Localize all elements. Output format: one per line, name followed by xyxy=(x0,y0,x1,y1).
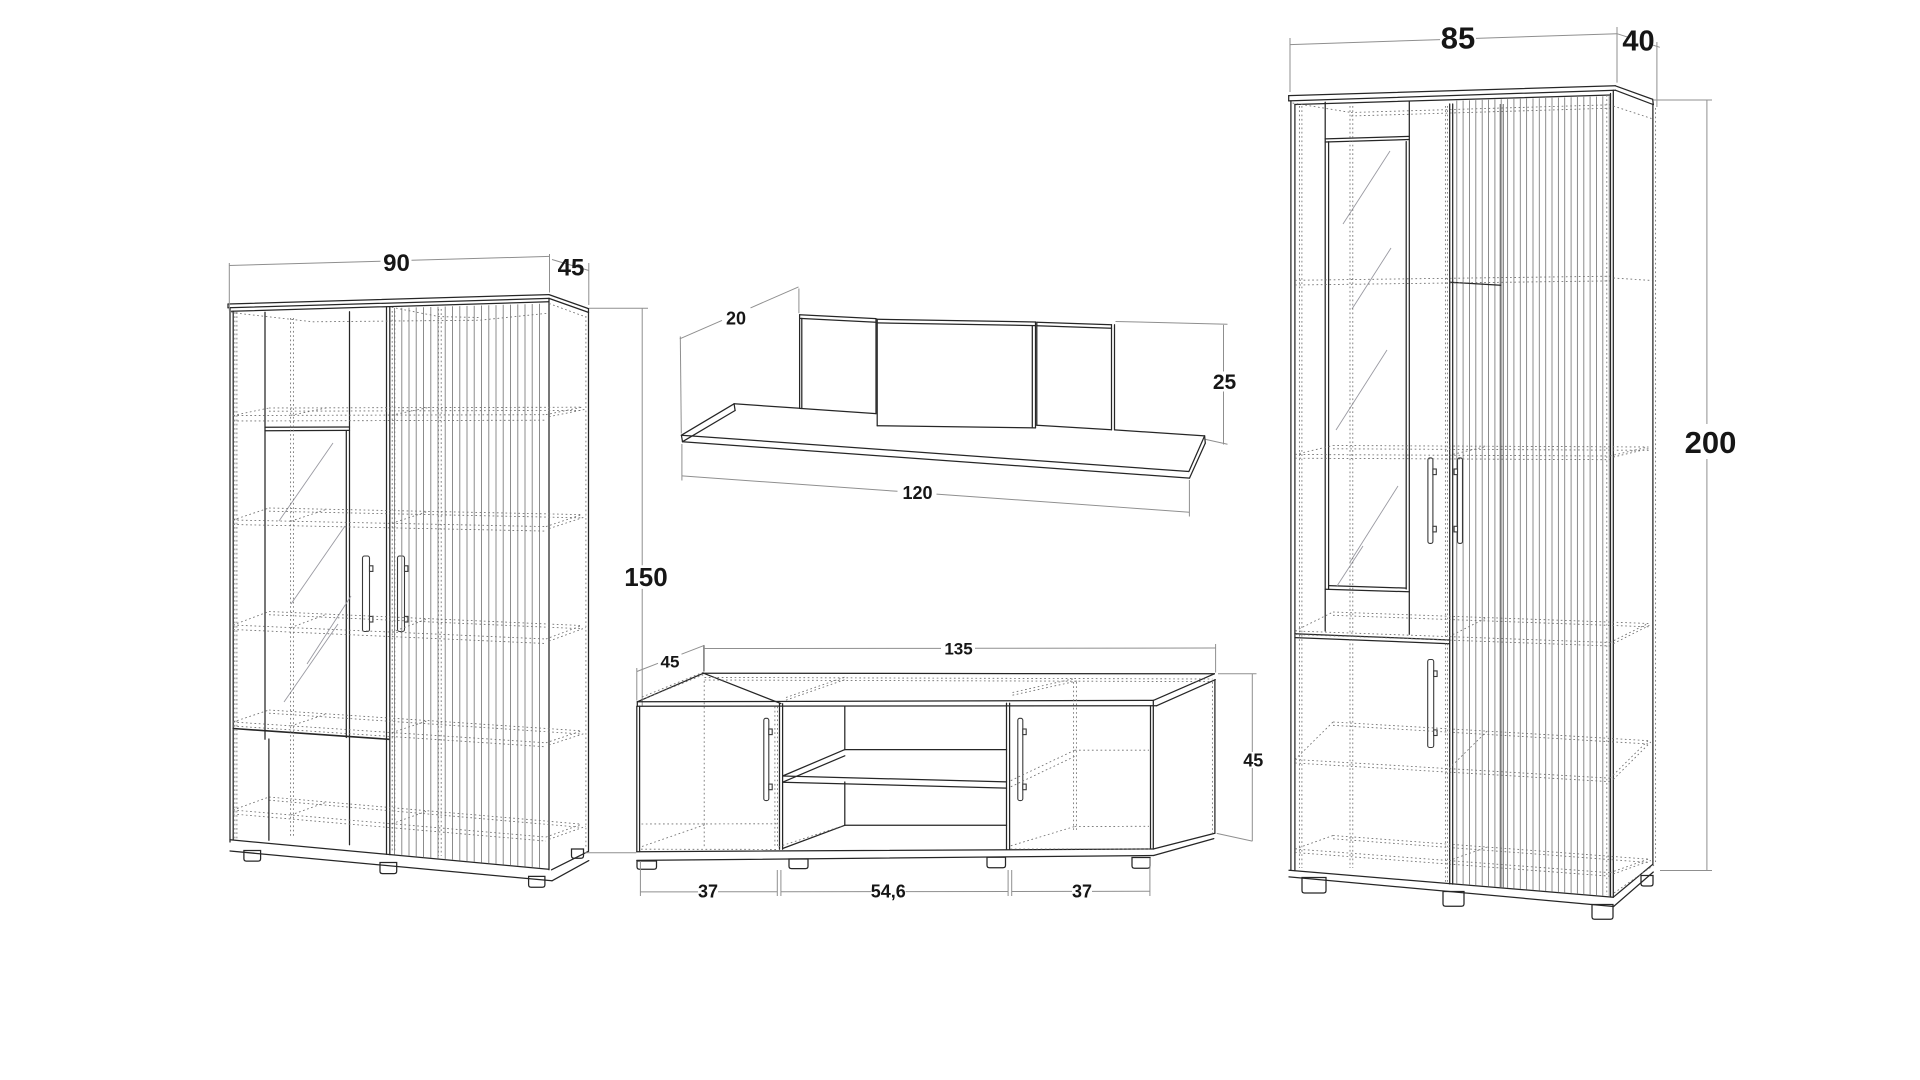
svg-text:25: 25 xyxy=(1213,371,1237,394)
svg-text:45: 45 xyxy=(1243,750,1263,770)
svg-text:37: 37 xyxy=(698,882,718,902)
svg-text:54,6: 54,6 xyxy=(871,882,906,902)
svg-text:45: 45 xyxy=(558,255,585,282)
svg-text:45: 45 xyxy=(661,652,680,671)
svg-text:37: 37 xyxy=(1072,881,1092,901)
svg-text:40: 40 xyxy=(1622,25,1654,57)
svg-text:85: 85 xyxy=(1441,21,1475,56)
svg-text:20: 20 xyxy=(726,308,746,328)
svg-text:150: 150 xyxy=(624,562,667,592)
svg-text:200: 200 xyxy=(1685,425,1737,460)
svg-text:120: 120 xyxy=(902,483,932,503)
svg-text:135: 135 xyxy=(944,640,972,659)
svg-text:90: 90 xyxy=(383,250,410,277)
